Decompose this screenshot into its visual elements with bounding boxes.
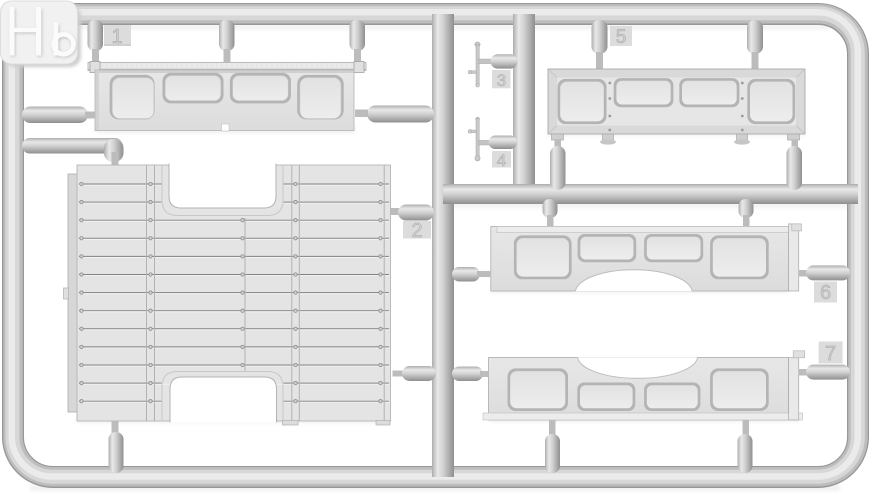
svg-text:3: 3 <box>497 71 506 90</box>
svg-text:7: 7 <box>825 343 836 365</box>
svg-text:6: 6 <box>820 282 831 304</box>
svg-text:2: 2 <box>411 220 422 242</box>
svg-text:4: 4 <box>497 151 506 170</box>
svg-text:1: 1 <box>111 26 122 48</box>
svg-text:5: 5 <box>616 27 627 48</box>
